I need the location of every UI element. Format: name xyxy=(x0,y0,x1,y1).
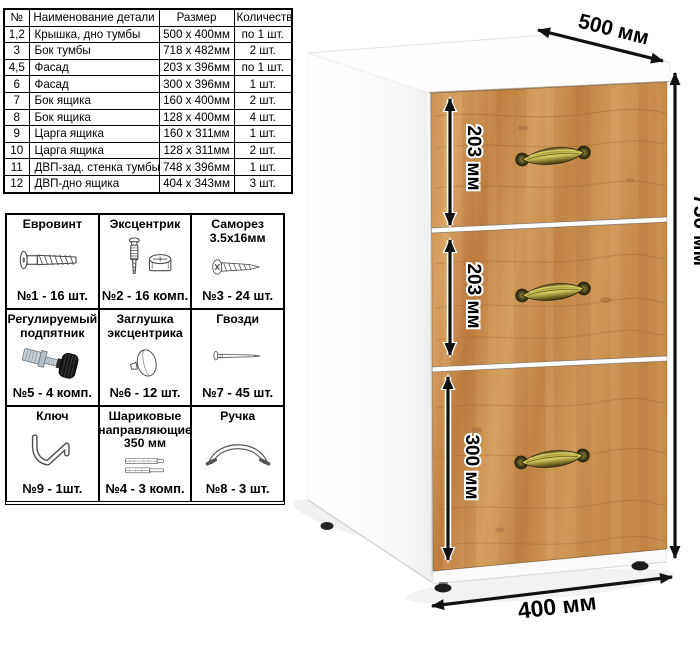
cabinet-body xyxy=(308,34,670,593)
cabinet-illustration: 500 мм 750 мм 400 мм 203 мм 203 мм 300 м… xyxy=(0,0,700,648)
assembly-sheet: № Наименование детали Размер Количество … xyxy=(0,0,700,648)
cabinet-foot xyxy=(632,562,649,571)
side-panel xyxy=(308,53,433,583)
drawer1-dimension-label: 203 мм xyxy=(463,125,484,190)
drawer2-dimension-label: 203 мм xyxy=(463,263,484,328)
drawer3-dimension-label: 300 мм xyxy=(461,434,482,499)
height-dimension-label: 750 мм xyxy=(689,194,700,266)
cabinet-foot xyxy=(321,522,334,530)
cabinet-foot xyxy=(435,584,452,593)
